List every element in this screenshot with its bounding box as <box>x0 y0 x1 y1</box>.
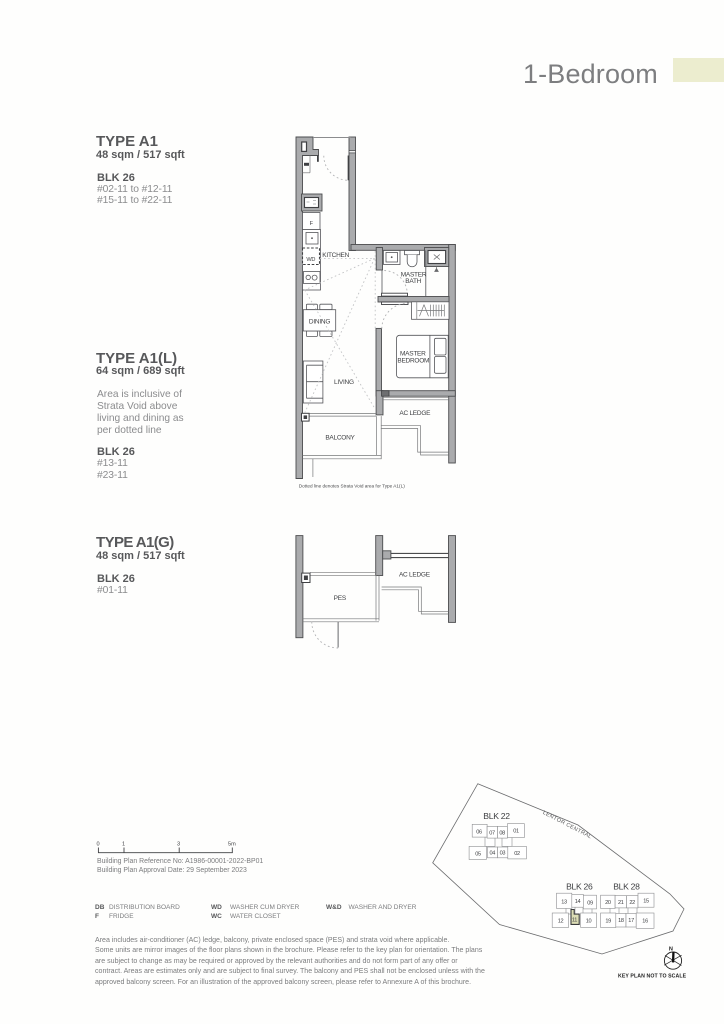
svg-text:LENTOR CENTRAL: LENTOR CENTRAL <box>542 810 593 840</box>
svg-text:KITCHEN: KITCHEN <box>322 252 349 259</box>
svg-text:3: 3 <box>177 842 180 848</box>
svg-text:AC LEDGE: AC LEDGE <box>399 410 431 417</box>
svg-text:13: 13 <box>561 899 567 905</box>
svg-text:BLK 22: BLK 22 <box>483 811 510 821</box>
svg-text:03: 03 <box>500 850 506 856</box>
svg-text:08: 08 <box>499 831 505 837</box>
svg-text:BLK 28: BLK 28 <box>613 882 640 892</box>
svg-text:09: 09 <box>587 900 593 906</box>
svg-text:Dotted line denotes Strata Voi: Dotted line denotes Strata Void area for… <box>299 484 405 489</box>
svg-text:06: 06 <box>476 829 482 835</box>
svg-text:BALCONY: BALCONY <box>325 435 355 442</box>
svg-text:DINING: DINING <box>309 318 330 325</box>
svg-text:KEY PLAN NOT TO SCALE: KEY PLAN NOT TO SCALE <box>618 974 687 980</box>
svg-text:N: N <box>669 947 673 953</box>
svg-text:19: 19 <box>605 918 611 924</box>
svg-text:PES: PES <box>334 595 347 602</box>
svg-text:0: 0 <box>97 842 100 848</box>
svg-text:14: 14 <box>575 899 581 905</box>
svg-text:07: 07 <box>489 831 495 837</box>
svg-text:LIVING: LIVING <box>334 379 354 386</box>
svg-text:1: 1 <box>122 842 125 848</box>
svg-text:05: 05 <box>475 851 481 857</box>
svg-text:11: 11 <box>572 917 577 923</box>
svg-text:AC LEDGE: AC LEDGE <box>399 572 431 579</box>
svg-text:12: 12 <box>558 918 564 924</box>
svg-text:21: 21 <box>618 900 624 906</box>
svg-text:16: 16 <box>642 919 648 925</box>
svg-text:15: 15 <box>643 898 649 904</box>
svg-text:WD: WD <box>306 257 315 263</box>
svg-text:04: 04 <box>489 850 495 856</box>
svg-text:01: 01 <box>513 829 519 835</box>
svg-text:17: 17 <box>628 918 634 924</box>
svg-text:BEDROOM: BEDROOM <box>397 357 429 364</box>
svg-text:02: 02 <box>514 851 520 857</box>
svg-text:22: 22 <box>629 900 635 906</box>
svg-text:5m: 5m <box>228 842 236 848</box>
svg-text:18: 18 <box>618 918 624 924</box>
svg-text:10: 10 <box>586 918 592 924</box>
svg-text:BATH: BATH <box>405 278 421 285</box>
svg-text:20: 20 <box>605 900 611 906</box>
svg-text:BLK 26: BLK 26 <box>566 882 593 892</box>
